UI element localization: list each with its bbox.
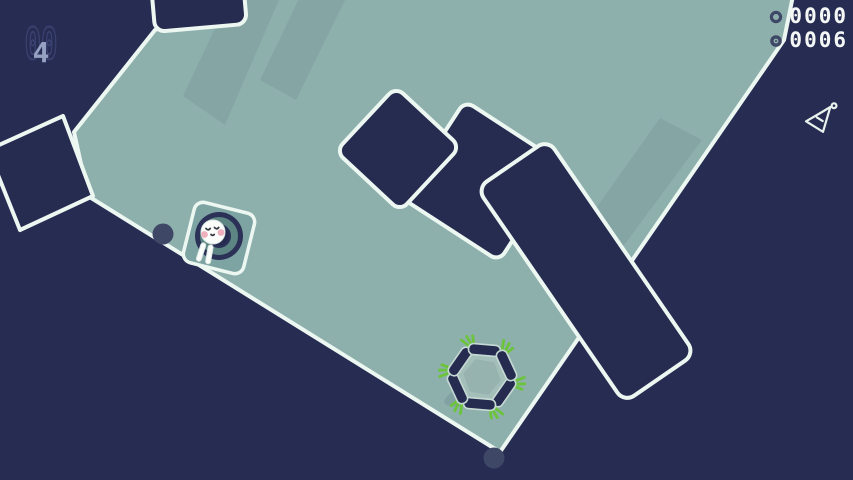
edge-dot-left bbox=[153, 224, 174, 245]
bunny-cheek-left bbox=[201, 231, 208, 238]
coin-counter-value: 0000 bbox=[789, 5, 848, 28]
bunny-cheek-right bbox=[218, 229, 225, 236]
counter-row-coins: 0000 bbox=[769, 5, 846, 28]
flask-flag-icon bbox=[797, 94, 845, 146]
counter-row-collectibles: 0006 bbox=[769, 29, 846, 52]
collectible-counter-value: 0006 bbox=[789, 29, 848, 52]
collectible-dot-icon bbox=[769, 34, 783, 48]
hud-counters: 0000 0006 bbox=[769, 5, 846, 52]
game-canvas[interactable] bbox=[0, 0, 853, 480]
edge-dot-bottom bbox=[484, 448, 505, 469]
obstacle-top-square bbox=[147, 0, 247, 32]
level-indicator: 00 4 bbox=[14, 12, 74, 70]
coin-ring-icon bbox=[769, 10, 783, 24]
game-viewport: 00 4 0000 0006 bbox=[0, 0, 853, 480]
level-number: 4 bbox=[33, 36, 50, 69]
bunny-mouth bbox=[211, 235, 214, 236]
player-bunny[interactable] bbox=[181, 200, 256, 275]
